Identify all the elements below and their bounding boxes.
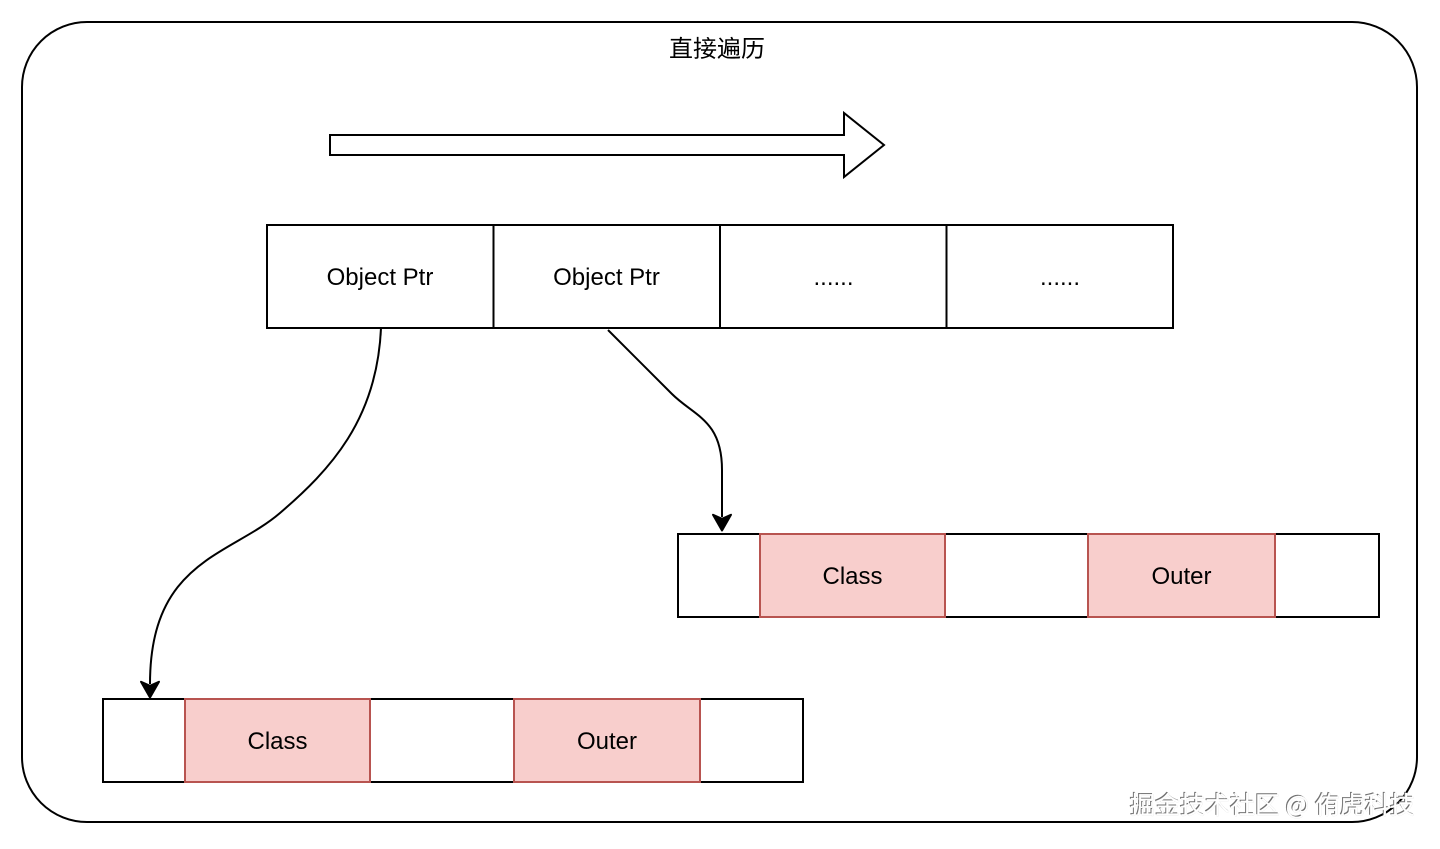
svg-text:Outer: Outer xyxy=(1151,563,1211,590)
svg-text:Class: Class xyxy=(822,563,882,590)
svg-text:Object Ptr: Object Ptr xyxy=(327,264,434,291)
svg-text:Object Ptr: Object Ptr xyxy=(553,264,660,291)
svg-text:......: ...... xyxy=(813,264,853,291)
svg-text:Outer: Outer xyxy=(577,728,637,755)
svg-text:......: ...... xyxy=(1040,264,1080,291)
svg-text:Class: Class xyxy=(247,728,307,755)
